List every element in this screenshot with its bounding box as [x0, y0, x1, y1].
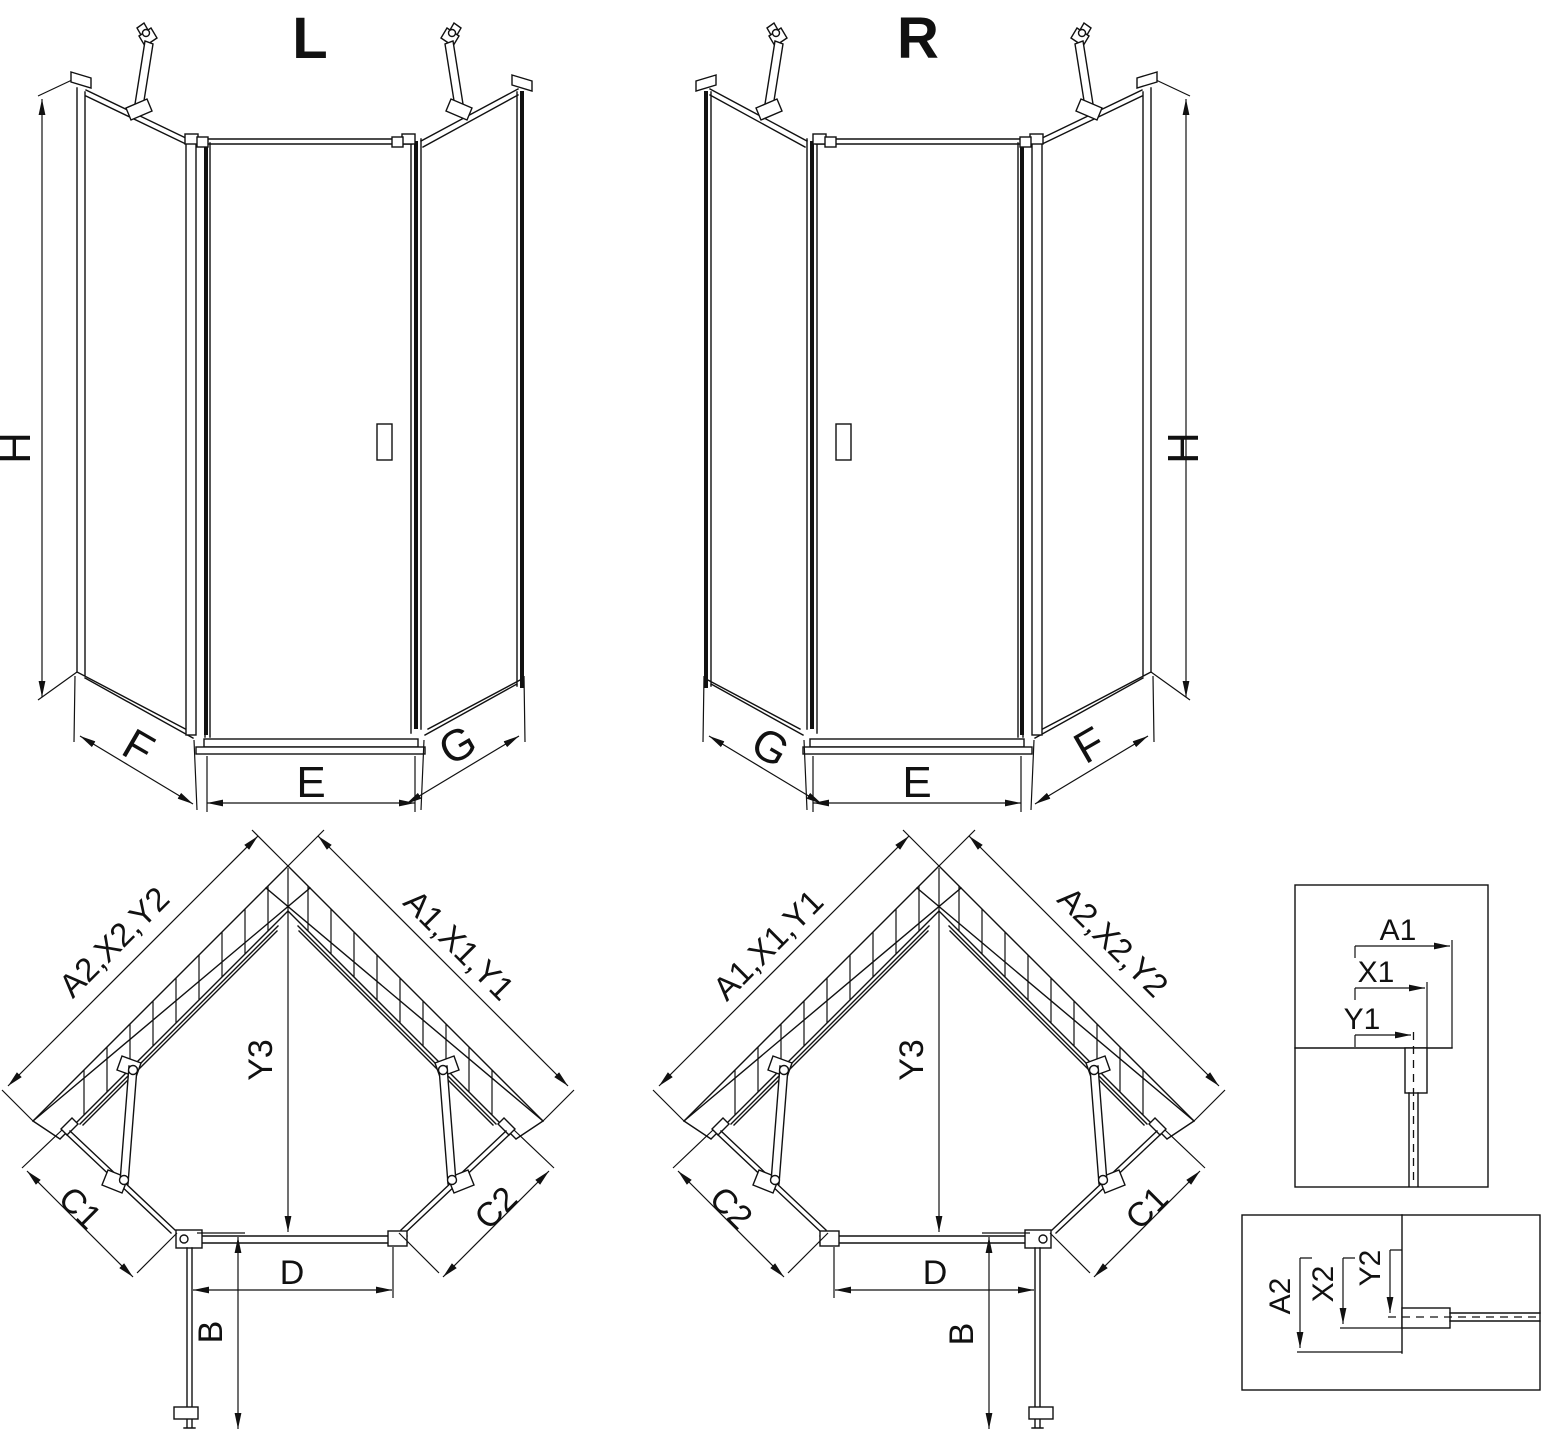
dim-label-height-l: H: [0, 432, 40, 464]
view-title-left: L: [292, 6, 327, 71]
plan-r-door-open-label: B: [943, 1323, 981, 1346]
detail-view-bottom: A2 X2 Y2: [1242, 1215, 1540, 1390]
plan-r-panel-left-label: C2: [702, 1179, 760, 1237]
plan-r-panel-right-label: C1: [1118, 1179, 1176, 1237]
detail-view-top: A1 X1 Y1: [1295, 885, 1488, 1187]
plan-l-depth-label: Y3: [242, 1039, 280, 1081]
view-title-right: R: [897, 6, 939, 71]
detail-bottom-dim1-label: A2: [1264, 1278, 1297, 1315]
detail-top-dim3-label: Y1: [1344, 1003, 1381, 1036]
plan-view-left: A2,X2,Y2 A1,X1,Y1 Y3 C1 C2 D B: [2, 830, 574, 1429]
plan-l-wall-left-label: A2,X2,Y2: [51, 879, 176, 1004]
plan-view-right: A1,X1,Y1 A2,X2,Y2 Y3 C2 C1 D B: [653, 830, 1225, 1429]
technical-drawing-page: L H F E G R H G E F A2,X2,Y2 A1,X1,Y1 Y3…: [0, 0, 1551, 1444]
detail-bottom-dim3-label: Y2: [1354, 1250, 1387, 1287]
plan-l-door-open-label: B: [192, 1321, 230, 1344]
front-view-left: L H F E G: [0, 6, 532, 812]
dim-label-bottom-left-l: F: [114, 720, 162, 776]
plan-r-depth-label: Y3: [893, 1039, 931, 1081]
detail-top-dim1-label: A1: [1380, 914, 1417, 947]
plan-r-wall-left-label: A1,X1,Y1: [705, 882, 830, 1007]
dim-label-bottom-right-r: F: [1066, 718, 1114, 774]
front-view-right: R H G E F: [696, 6, 1208, 812]
dim-label-height-r: H: [1159, 432, 1208, 464]
shower-enclosure-diagram: L H F E G R H G E F A2,X2,Y2 A1,X1,Y1 Y3…: [0, 0, 1551, 1444]
plan-l-panel-left-label: C1: [51, 1179, 109, 1237]
wall-profile: [1405, 1048, 1427, 1093]
plan-r-wall-right-label: A2,X2,Y2: [1051, 879, 1176, 1004]
dim-label-bottom-center-l: E: [296, 758, 325, 807]
wall-profile: [1402, 1308, 1450, 1328]
plan-l-wall-right-label: A1,X1,Y1: [397, 882, 522, 1007]
detail-top-dim2-label: X1: [1358, 956, 1395, 989]
dim-label-bottom-center-r: E: [902, 758, 931, 807]
plan-l-panel-right-label: C2: [467, 1179, 525, 1237]
plan-l-door-width-label: D: [280, 1254, 305, 1292]
plan-r-door-width-label: D: [923, 1254, 948, 1292]
dim-label-bottom-right-l: G: [431, 716, 485, 776]
detail-bottom-dim2-label: X2: [1307, 1266, 1340, 1303]
